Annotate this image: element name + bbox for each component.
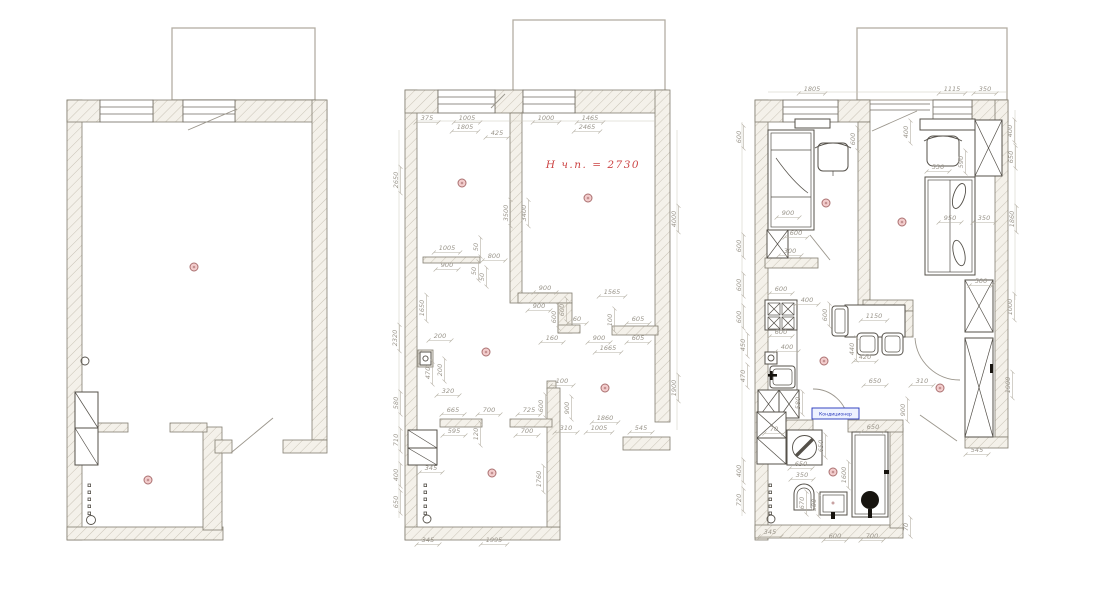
- dimension-label: 1760: [535, 471, 543, 488]
- dimension: 320: [435, 387, 462, 398]
- dimension-label: 4000: [670, 211, 678, 228]
- dimension-label: 700: [521, 427, 533, 435]
- dimension-label: 425: [491, 129, 503, 137]
- kid-desk: [795, 119, 830, 128]
- dimension: 200: [436, 357, 447, 384]
- dimension-label: 1805: [804, 85, 821, 93]
- dimension-label: 1005: [439, 244, 456, 252]
- dimension-label: 665: [447, 406, 459, 414]
- dimension-label: 100: [606, 314, 614, 326]
- dimension-label: 600: [735, 311, 743, 323]
- dimension-label: 70: [902, 523, 910, 531]
- dimension-label: 1115: [944, 85, 961, 93]
- dimension: 50: [472, 235, 483, 258]
- dimension: 160: [539, 334, 566, 345]
- door-handle: [884, 470, 889, 474]
- dimension: 1665: [593, 344, 623, 355]
- dimension-label: 1665: [600, 344, 617, 352]
- pipe-riser-icon: [87, 516, 96, 525]
- room-marker-dot: [939, 387, 942, 390]
- dimension-label: 400: [735, 465, 743, 477]
- dimension: 665: [440, 406, 467, 417]
- dimension: 650: [392, 489, 403, 516]
- dimension: 310: [909, 377, 936, 388]
- dimension: 1565: [597, 288, 627, 299]
- dimension-label: 1900: [670, 380, 678, 397]
- dimension: 350: [972, 85, 999, 96]
- dimension: 600: [768, 285, 795, 296]
- dimension: 2465: [572, 123, 602, 134]
- dimension-label: 2465: [579, 123, 596, 131]
- dimension-label: 3500: [502, 205, 510, 222]
- dimension-label: 50: [478, 273, 486, 281]
- floorplan-sheet: Н ч.п. = 2730 37510051805425100014652465…: [0, 0, 1102, 602]
- dimension-label: 650: [817, 440, 825, 452]
- dimension-label: 600: [735, 240, 743, 252]
- wardrobe-right-2: [965, 338, 993, 437]
- kitchen-faucet-unit: [765, 352, 777, 364]
- dimension: 400: [735, 458, 746, 485]
- dimension: 1650: [418, 293, 429, 323]
- dimension: 545: [628, 424, 655, 435]
- dimension-label: 160: [546, 334, 558, 342]
- room-marker-dot: [823, 360, 826, 363]
- kidroom-door-swing: [810, 235, 830, 260]
- dimension: 600: [735, 304, 746, 331]
- duct-shaft: [75, 392, 98, 465]
- room-marker-dot: [587, 197, 590, 200]
- dimension-label: 470: [424, 367, 432, 379]
- dimension-label: 1565: [604, 288, 621, 296]
- dimension-label: 1860: [1008, 211, 1016, 228]
- dimension-label: 500: [975, 277, 987, 285]
- dimension-label: 530: [932, 163, 944, 171]
- dimension-label: 1005: [591, 424, 608, 432]
- dimension-label: 600: [775, 328, 787, 336]
- dimension: 650: [1007, 144, 1018, 171]
- ac-label: Кондиционер: [812, 408, 859, 419]
- room-marker-dot: [901, 221, 904, 224]
- dimension-label: 700: [483, 406, 495, 414]
- bedroom-desk: [920, 119, 975, 130]
- dimension-label: 580: [392, 397, 400, 409]
- ceiling-height-note: Н ч.п. = 2730: [545, 159, 640, 171]
- dimension-label: 2650: [392, 172, 400, 189]
- dimension: 200: [427, 332, 454, 343]
- dimension-label: 600: [829, 532, 841, 540]
- dimension-label: 120: [472, 428, 480, 440]
- dimension: 470: [739, 363, 750, 390]
- dimension: 710: [392, 427, 403, 454]
- dimension-label: 900: [593, 334, 605, 342]
- dimension-label: 100: [556, 377, 568, 385]
- entry-door-swing: [232, 418, 273, 452]
- floorplans-canvas: Н ч.п. = 2730 37510051805425100014652465…: [0, 0, 1102, 602]
- dimension: 600: [735, 233, 746, 260]
- dimension: 600: [821, 302, 832, 329]
- walls: [67, 100, 327, 540]
- dimension-label: 320: [442, 387, 454, 395]
- balcony-door-threshold: [870, 104, 930, 110]
- dimension-label: 400: [902, 126, 910, 138]
- ac-label-text: Кондиционер: [819, 412, 852, 418]
- dimension: 1805: [797, 85, 827, 96]
- dimension-label: 500: [810, 499, 818, 511]
- dimension: 1900: [670, 373, 681, 403]
- dimension: 425: [484, 129, 511, 140]
- dimension-label: 605: [632, 334, 644, 342]
- kitchen-sink: [768, 366, 795, 388]
- dimension-label: 580: [794, 397, 802, 409]
- window: [100, 100, 153, 122]
- dimension-label: 400: [781, 343, 793, 351]
- dimension-label: 600: [558, 304, 566, 316]
- dimension: 1860: [590, 414, 620, 425]
- dimension: 595: [441, 427, 468, 438]
- dining-chair-2: [857, 333, 878, 355]
- floor-plan-existing: [67, 28, 327, 540]
- dimension-label: 60: [573, 315, 581, 323]
- room-marker-dot: [461, 182, 464, 185]
- room-marker-dot: [147, 479, 150, 482]
- wardrobe-top-right: [975, 120, 1002, 176]
- window: [438, 90, 495, 113]
- wardrobe-handle: [990, 364, 993, 373]
- dimension-label: 1650: [418, 300, 426, 317]
- dimension-label: 600: [735, 131, 743, 143]
- dimension-label: 300: [784, 247, 796, 255]
- dimension: 600: [735, 272, 746, 299]
- pipe-riser-icon: [423, 515, 431, 523]
- riser-dots: [423, 484, 431, 523]
- dimension-label: 600: [550, 311, 558, 323]
- dimension-label: 400: [1006, 125, 1014, 137]
- dimension-label: 200: [434, 332, 446, 340]
- dimension: 70: [902, 515, 913, 538]
- dimension: 700: [514, 427, 541, 438]
- dimension-label: 650: [1007, 151, 1015, 163]
- dimension-label: 900: [782, 209, 794, 217]
- dimension-label: 600: [849, 133, 857, 145]
- dimension-label: 310: [916, 377, 928, 385]
- dimension: 345: [418, 464, 445, 475]
- dimension-label: 440: [848, 343, 856, 355]
- dimension-label: 710: [392, 434, 400, 446]
- dining-chair-1: [832, 306, 848, 336]
- dimension: 700: [476, 406, 503, 417]
- bedroom-door-swing: [915, 338, 960, 380]
- dimension-label: 345: [764, 528, 776, 536]
- dimension-label: 400: [392, 469, 400, 481]
- balcony-outline: [513, 20, 665, 92]
- dimension-label: 900: [539, 284, 551, 292]
- dimension: 375: [414, 114, 441, 125]
- dimension-label: 590: [957, 156, 965, 168]
- dimension-label: 1805: [457, 123, 474, 131]
- floor-plan-furnished: Кондиционер 1805111535060060040040065059…: [735, 28, 1019, 543]
- dimension: 900: [586, 334, 613, 345]
- dimension: 350: [789, 471, 816, 482]
- dimension-label: 600: [775, 285, 787, 293]
- dimension-label: 650: [392, 496, 400, 508]
- dimension-label: 950: [944, 214, 956, 222]
- dimension: 900: [526, 302, 553, 313]
- dimension-label: 800: [488, 252, 500, 260]
- dimension-label: 2320: [391, 330, 399, 347]
- dimension-label: 310: [560, 424, 572, 432]
- dimension: 4000: [670, 204, 681, 234]
- dimension: 900: [899, 397, 910, 424]
- dimension-label: 350: [978, 214, 990, 222]
- dimension: 1805: [450, 123, 480, 134]
- dimension: 1005: [432, 244, 462, 255]
- dimension-label: 1000: [1006, 299, 1014, 316]
- dimension: 605: [625, 334, 652, 345]
- dimension-label: 400: [801, 296, 813, 304]
- dimension-label: 1860: [597, 414, 614, 422]
- window: [183, 100, 235, 122]
- room-marker-dot: [485, 351, 488, 354]
- kid-desk-chair: [815, 143, 851, 176]
- dimension-label: 70: [770, 425, 778, 433]
- dimension-label: 700: [866, 532, 878, 540]
- dimension-label: 595: [448, 427, 460, 435]
- dimension-label: 650: [867, 423, 879, 431]
- dimension-label: 470: [739, 370, 747, 382]
- dimension: 2320: [391, 323, 402, 353]
- dimension: 50: [478, 265, 489, 288]
- dimension: 450: [739, 332, 750, 359]
- dimension-label: 600: [735, 279, 743, 291]
- dimension-label: 545: [971, 446, 983, 454]
- dimension-label: 345: [425, 464, 437, 472]
- dimension-label: 725: [523, 406, 535, 414]
- dimension: 400: [902, 119, 913, 146]
- kitchen-stove: [765, 300, 797, 330]
- dimension-label: 670: [798, 497, 806, 509]
- marker-layer: [144, 263, 198, 484]
- dimension: 400: [774, 343, 801, 354]
- room-marker-dot: [193, 266, 196, 269]
- dimension-label: 650: [869, 377, 881, 385]
- dimension: 2650: [392, 165, 403, 195]
- dimension: 1760: [535, 464, 546, 494]
- dimension: 800: [481, 252, 508, 263]
- room-marker-dot: [491, 472, 494, 475]
- dimension: 1005: [584, 424, 614, 435]
- shower-cabin: [852, 432, 889, 518]
- vent-box: [420, 352, 431, 365]
- dimension-label: 720: [735, 494, 743, 506]
- dimension-label: 1600: [840, 467, 848, 484]
- room-marker-dot: [832, 471, 835, 474]
- dimension-label: 900: [563, 402, 571, 414]
- dimension-label: 545: [635, 424, 647, 432]
- dimension-label: 1000: [538, 114, 555, 122]
- dimension-label: 350: [796, 471, 808, 479]
- dimension: 600: [537, 393, 548, 420]
- dimension: 400: [392, 462, 403, 489]
- balcony-outline: [172, 28, 315, 100]
- dimension: 580: [392, 390, 403, 417]
- dimension-label: 450: [739, 339, 747, 351]
- dimension: 1000: [531, 114, 561, 125]
- bathroom-sink: [820, 492, 847, 519]
- dimension-label: 3400: [520, 205, 528, 222]
- dimension-label: 1465: [582, 114, 599, 122]
- dimension: 1115: [937, 85, 967, 96]
- dimension-label: 1995: [486, 536, 503, 544]
- dimension-label: 1005: [459, 114, 476, 122]
- dimension-label: 345: [422, 536, 434, 544]
- floor-plan-measured: Н ч.п. = 2730 37510051805425100014652465…: [391, 20, 681, 547]
- dimension: 720: [735, 487, 746, 514]
- bedroom-bed: [925, 177, 975, 275]
- dimension-label: 1150: [866, 312, 883, 320]
- duct-shaft: [408, 430, 437, 465]
- dining-table: [845, 305, 905, 337]
- dimension: 900: [563, 395, 574, 422]
- dimension-label: 900: [533, 302, 545, 310]
- dimension-label: 350: [979, 85, 991, 93]
- room-marker-dot: [604, 387, 607, 390]
- dimension-label: 375: [421, 114, 433, 122]
- dimension: 1600: [840, 460, 851, 490]
- dimension-label: 50: [470, 267, 478, 275]
- entry-door-swing: [920, 415, 957, 441]
- dimension: 400: [794, 296, 821, 307]
- room-marker-dot: [825, 202, 828, 205]
- dimension-label: 650: [795, 460, 807, 468]
- dimension: 650: [862, 377, 889, 388]
- dimension-label: 900: [899, 404, 907, 416]
- dimension-label: 600: [790, 229, 802, 237]
- dimension-label: 420: [859, 353, 871, 361]
- dimension: 600: [735, 124, 746, 151]
- dining-chair-3: [882, 333, 903, 355]
- duct-shaft: [757, 412, 786, 464]
- dimension-label: 50: [472, 243, 480, 251]
- dimension-label: 600: [537, 400, 545, 412]
- wardrobe-right-1: [965, 280, 993, 332]
- window: [523, 90, 575, 113]
- dimension: 605: [625, 315, 652, 326]
- dimension-label: 605: [632, 315, 644, 323]
- dimension-label: 900: [441, 261, 453, 269]
- dimension: 1860: [1008, 204, 1019, 234]
- dimension-label: 1900: [1004, 377, 1012, 394]
- dimension-label: 200: [436, 364, 444, 376]
- dimension-label: 600: [821, 309, 829, 321]
